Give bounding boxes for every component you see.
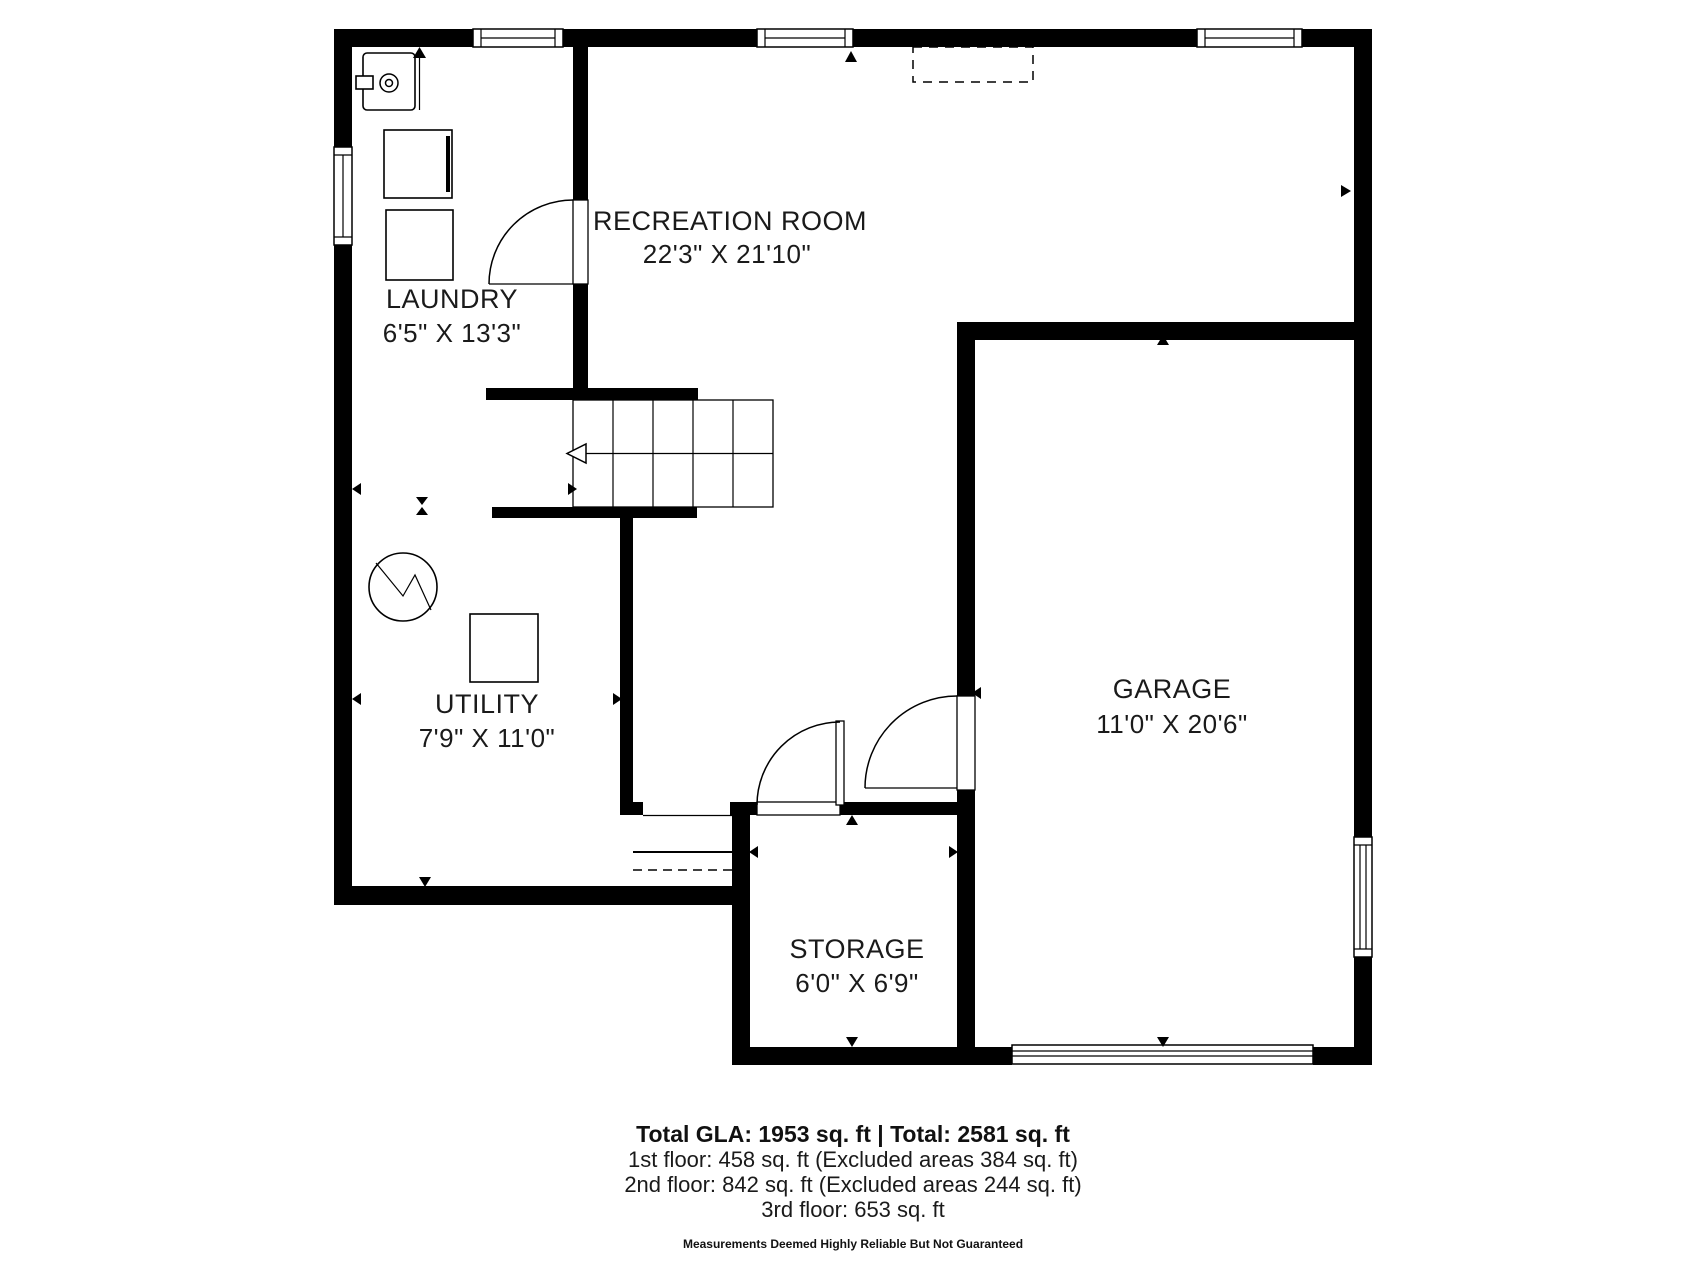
dims-utility: 7'9" X 11'0"	[419, 723, 556, 753]
wall-bottom-garage-corner	[1313, 1047, 1372, 1065]
wall-hall-stub	[620, 802, 643, 815]
arrow-right-icon	[1341, 185, 1351, 197]
door-storage	[757, 721, 844, 815]
dims-garage: 11'0" X 20'6"	[1096, 709, 1248, 739]
washer-icon	[384, 130, 452, 198]
exterior-entry-alcove	[633, 816, 732, 871]
arrow-left-icon	[352, 693, 361, 705]
wall-storage-top	[840, 802, 975, 815]
window-garage-right	[1354, 837, 1372, 957]
dims-storage: 6'0" X 6'9"	[795, 968, 919, 998]
arrow-down-icon	[416, 497, 428, 505]
footer-floor3: 3rd floor: 653 sq. ft	[761, 1197, 944, 1222]
garage-door	[1012, 1045, 1313, 1064]
arrow-right-icon	[949, 846, 958, 858]
arrow-left-icon	[352, 483, 361, 495]
wall-storage-left	[732, 802, 750, 1065]
footer-totals: Total GLA: 1953 sq. ft | Total: 2581 sq.…	[636, 1121, 1070, 1147]
furnace-icon	[470, 614, 538, 682]
door-arc	[489, 200, 573, 284]
electrical-panel-icon	[369, 553, 437, 621]
footer-floor1: 1st floor: 458 sq. ft (Excluded areas 38…	[628, 1147, 1078, 1172]
window-laundry-left	[334, 147, 352, 245]
label-utility: UTILITY	[435, 689, 539, 719]
wall-stairs-top	[486, 388, 698, 400]
wall-bottom-left	[334, 886, 747, 905]
footer-disclaimer: Measurements Deemed Highly Reliable But …	[683, 1237, 1023, 1251]
dryer-icon	[386, 210, 453, 280]
wall-stairs-bottom	[492, 507, 697, 518]
label-laundry: LAUNDRY	[386, 284, 518, 314]
arrow-down-icon	[846, 1037, 858, 1047]
floor-plan-canvas: LAUNDRY 6'5" X 13'3" RECREATION ROOM 22'…	[0, 0, 1706, 1280]
arrow-up-icon	[846, 815, 858, 825]
exterior-walls	[334, 29, 1372, 1065]
stairs	[567, 400, 773, 507]
arrow-up-icon	[416, 507, 428, 515]
water-heater-icon	[356, 47, 426, 110]
window-laundry-top	[473, 29, 563, 47]
door-arc	[757, 722, 840, 805]
wall-utility-right	[620, 518, 633, 815]
interior-walls	[486, 47, 1372, 1065]
dims-laundry: 6'5" X 13'3"	[383, 318, 521, 348]
arrow-down-icon	[419, 877, 431, 887]
door-arc	[865, 696, 957, 788]
label-garage: GARAGE	[1113, 674, 1232, 704]
footer-floor2: 2nd floor: 842 sq. ft (Excluded areas 24…	[624, 1172, 1081, 1197]
window-recreation-top	[757, 29, 853, 47]
dashed-overhang-rect	[913, 47, 1033, 82]
arrow-left-icon	[749, 846, 758, 858]
door-laundry	[489, 200, 588, 284]
label-storage: STORAGE	[789, 934, 924, 964]
door-garage-hall	[865, 696, 975, 790]
floor-plan-page: LAUNDRY 6'5" X 13'3" RECREATION ROOM 22'…	[0, 0, 1706, 1280]
wall-garage-left	[957, 322, 975, 1047]
arrow-up-icon	[845, 51, 857, 62]
window-recreation-top-right	[1197, 29, 1302, 47]
label-recreation: RECREATION ROOM	[593, 206, 867, 236]
wall-bottom-storage	[732, 1047, 1012, 1065]
wall-garage-top	[957, 322, 1372, 340]
dims-recreation: 22'3" X 21'10"	[643, 239, 811, 269]
